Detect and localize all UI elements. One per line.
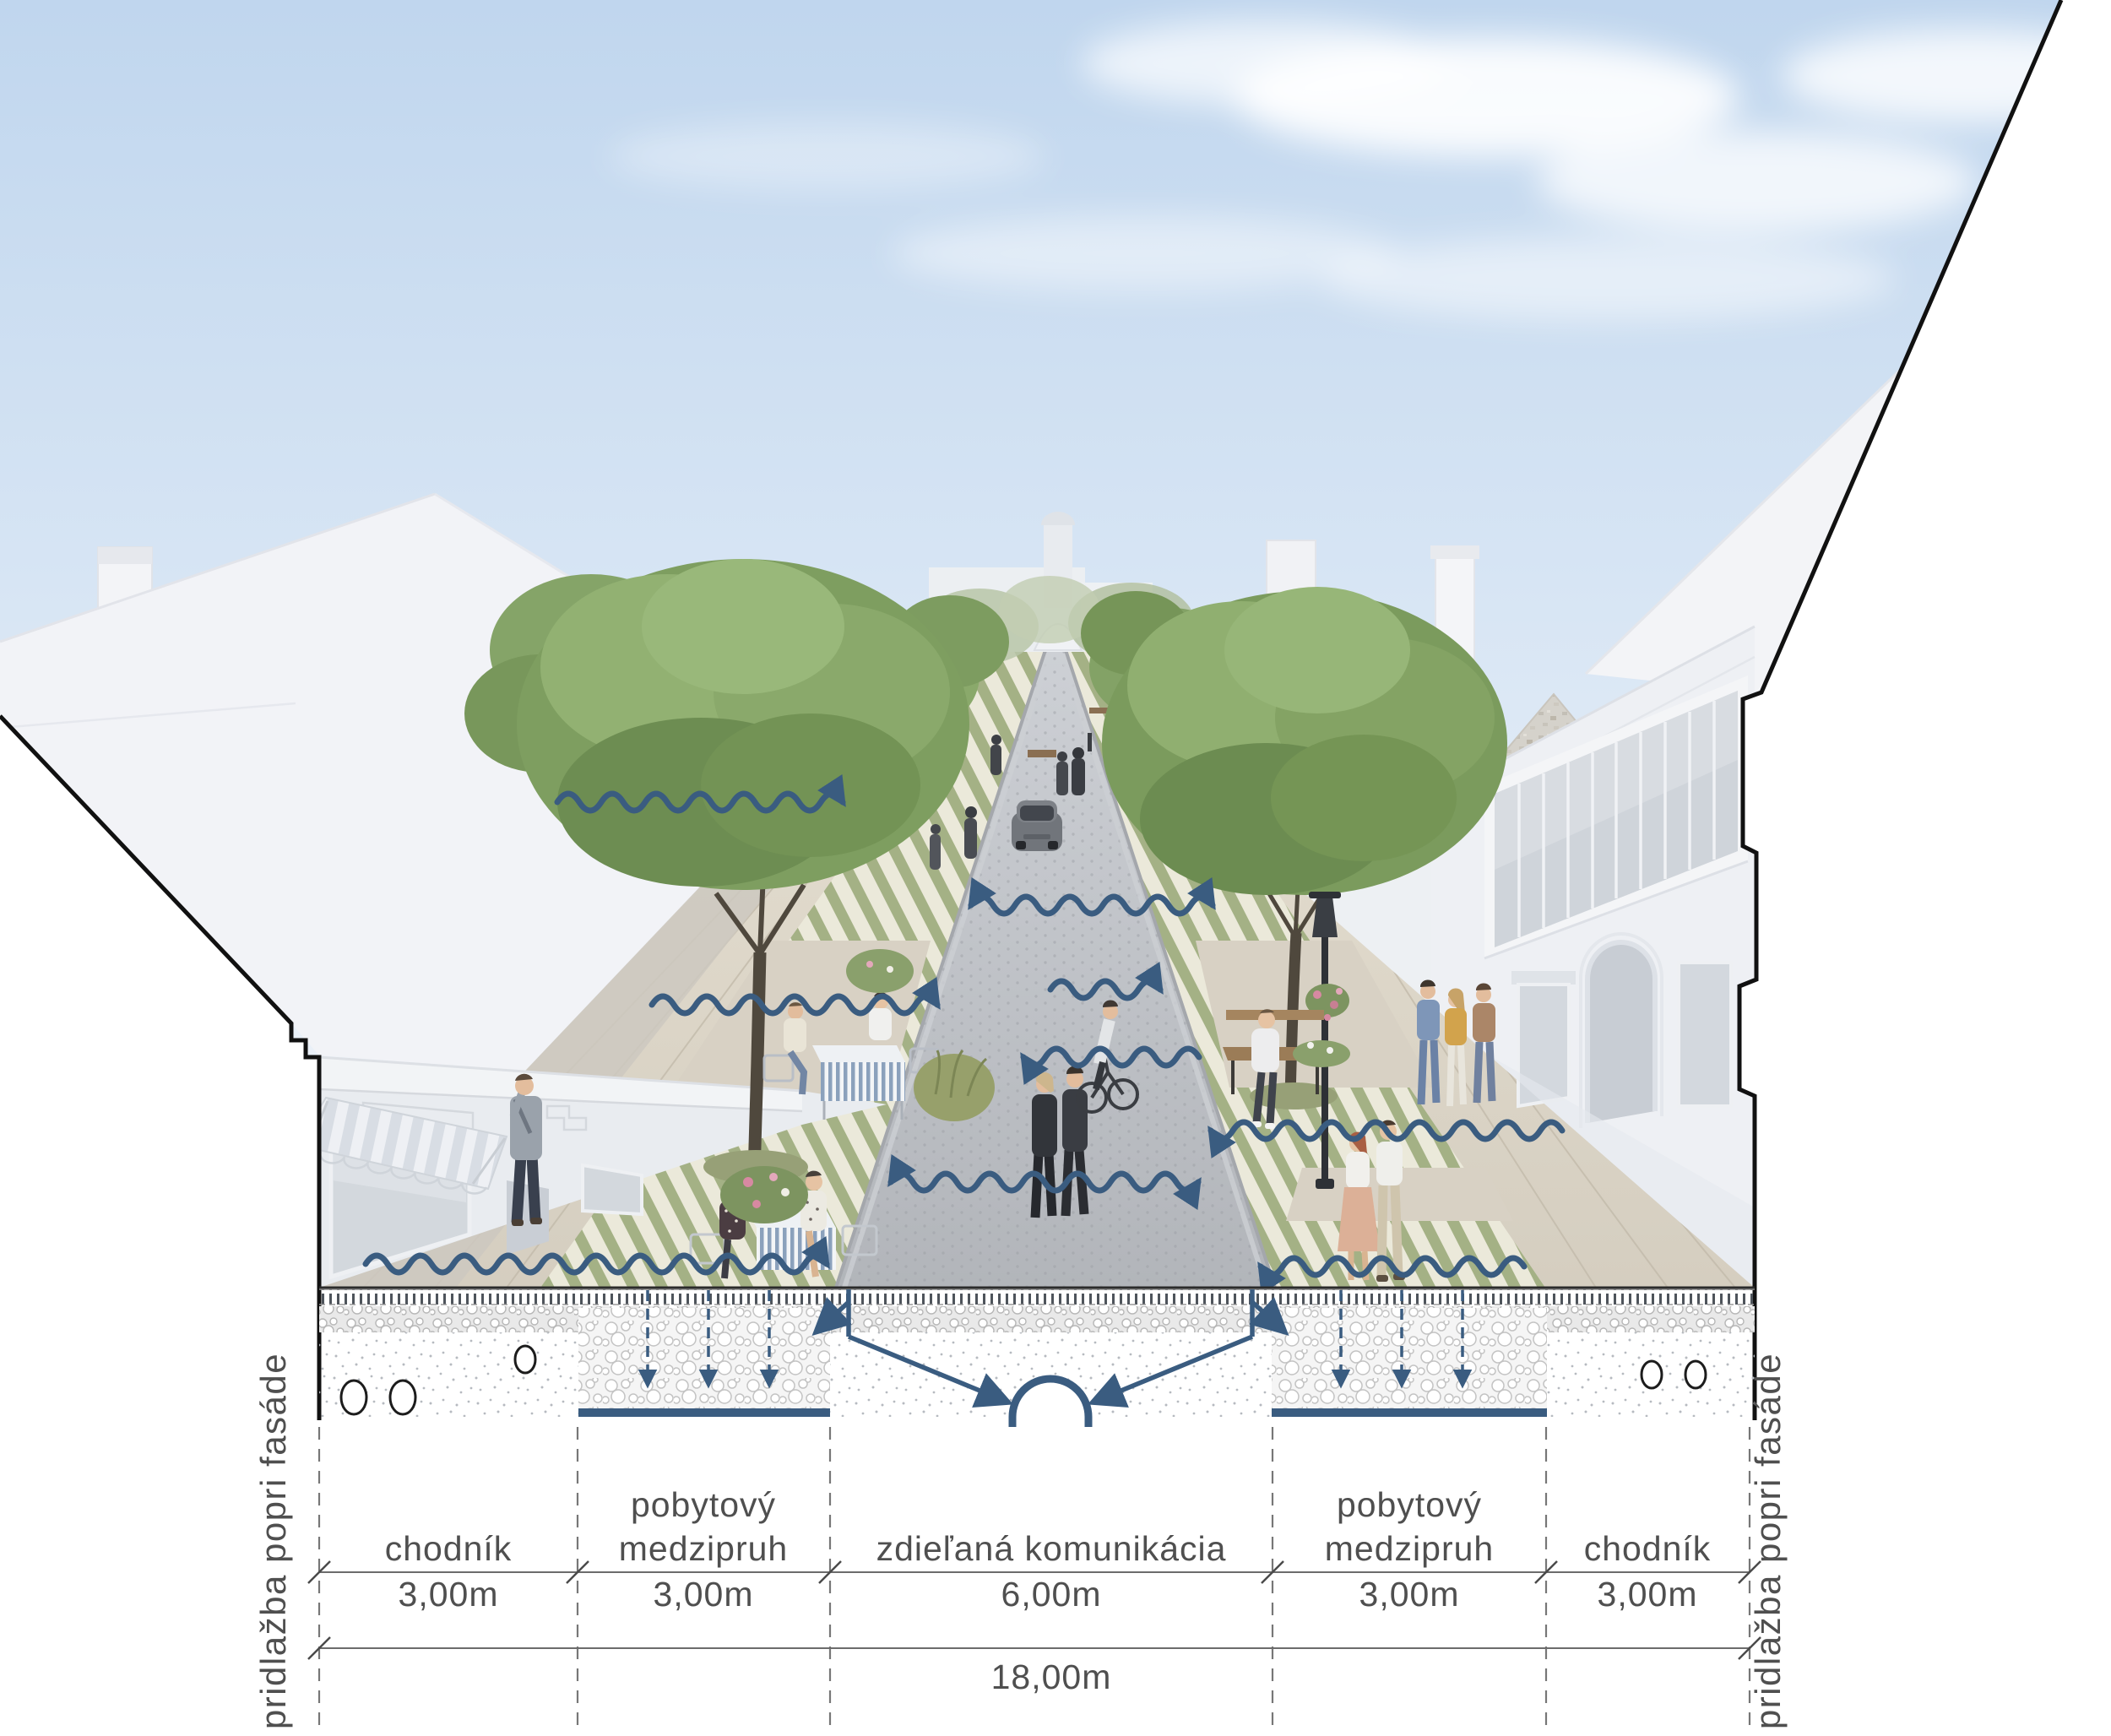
tree-canopy — [517, 559, 969, 890]
arched-portal — [1587, 942, 1655, 1123]
utility-conduit-icon — [515, 1346, 535, 1373]
utility-conduit-icon — [1685, 1361, 1706, 1388]
shop-window — [583, 1165, 642, 1214]
zone-size-medzipruh-left: 3,00m — [654, 1575, 754, 1614]
zone-size-medzipruh-right: 3,00m — [1359, 1575, 1460, 1614]
zone-label-medzipruh-left-line2: medzipruh — [619, 1529, 788, 1568]
zone-label-medzipruh-left-line1: pobytový — [631, 1485, 776, 1524]
tree-trunk — [754, 952, 760, 1175]
drainage-pipe-icon — [1012, 1379, 1088, 1427]
window-hood — [1511, 971, 1576, 985]
section-perspective-drawing: chodník 3,00m pobytový medzipruh 3,00m z… — [0, 0, 2111, 1736]
zone-size-chodnik-right: 3,00m — [1598, 1575, 1698, 1614]
utility-conduit-icon — [1642, 1361, 1662, 1388]
car — [1012, 800, 1062, 851]
zone-label-chodnik-left: chodník — [385, 1529, 513, 1568]
infiltration-trench-left — [578, 1308, 830, 1409]
total-width-label: 18,00m — [991, 1657, 1112, 1696]
facade-window — [1679, 963, 1731, 1106]
underground-section — [319, 1288, 1755, 1427]
infiltration-trench-right — [1272, 1308, 1547, 1409]
zone-size-komunikacia: 6,00m — [1001, 1575, 1102, 1614]
cafe-table — [821, 1062, 905, 1101]
paving-bedding-layer — [319, 1289, 1755, 1305]
side-label-right: pridlažba popri fasáde — [1748, 1353, 1788, 1729]
zone-label-chodnik-right: chodník — [1584, 1529, 1712, 1568]
trench-liner-left — [578, 1408, 830, 1417]
zone-label-komunikacia: zdieľaná komunikácia — [876, 1529, 1227, 1568]
zone-label-medzipruh-right-line2: medzipruh — [1325, 1529, 1494, 1568]
trench-liner-right — [1272, 1408, 1547, 1417]
zone-size-chodnik-left: 3,00m — [399, 1575, 499, 1614]
street-section-visualization: chodník 3,00m pobytový medzipruh 3,00m z… — [0, 0, 2111, 1736]
zone-label-medzipruh-right-line1: pobytový — [1337, 1485, 1482, 1524]
side-label-left: pridlažba popri fasáde — [253, 1353, 293, 1729]
utility-conduit-icon — [341, 1381, 366, 1414]
utility-conduit-icon — [390, 1381, 415, 1414]
